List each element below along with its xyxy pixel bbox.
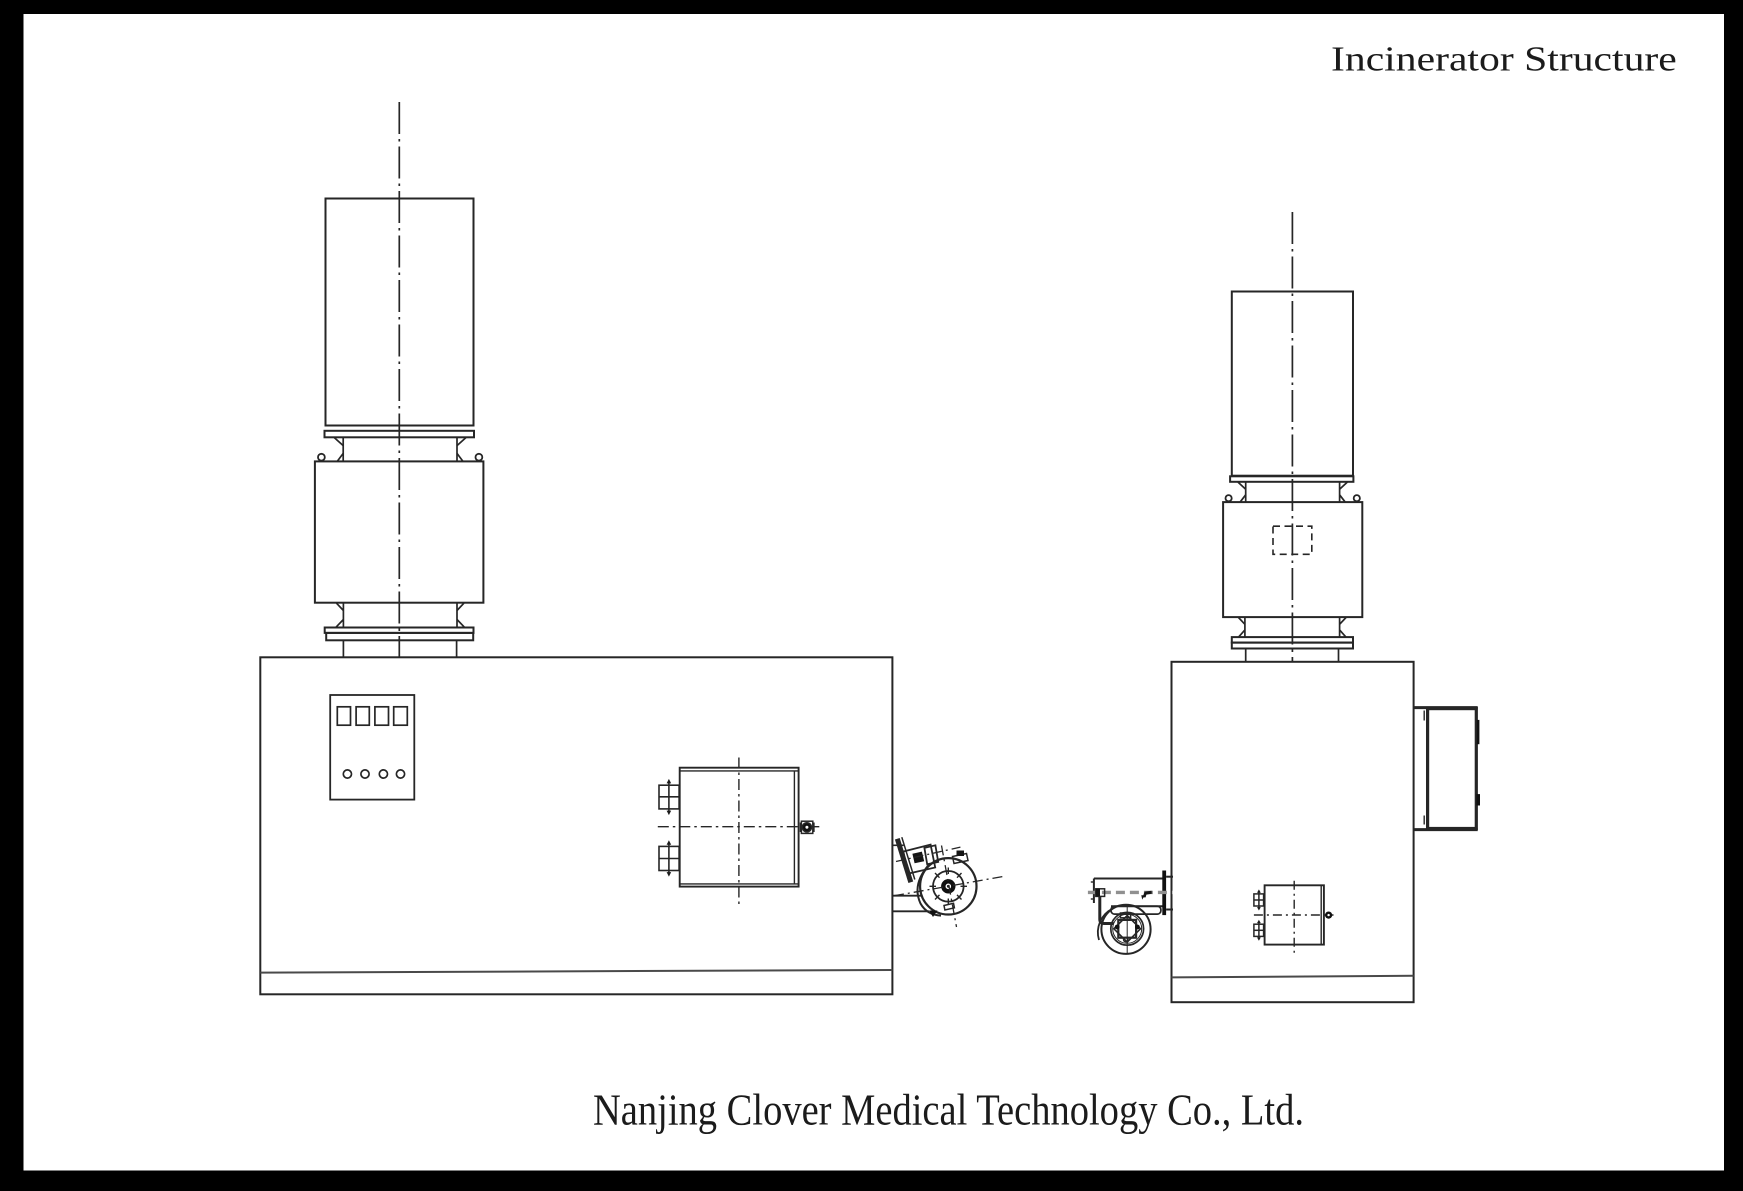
svg-text:Incinerator Structure: Incinerator Structure <box>1331 40 1677 78</box>
svg-text:Nanjing Clover Medical Technol: Nanjing Clover Medical Technology Co., L… <box>593 1086 1304 1135</box>
